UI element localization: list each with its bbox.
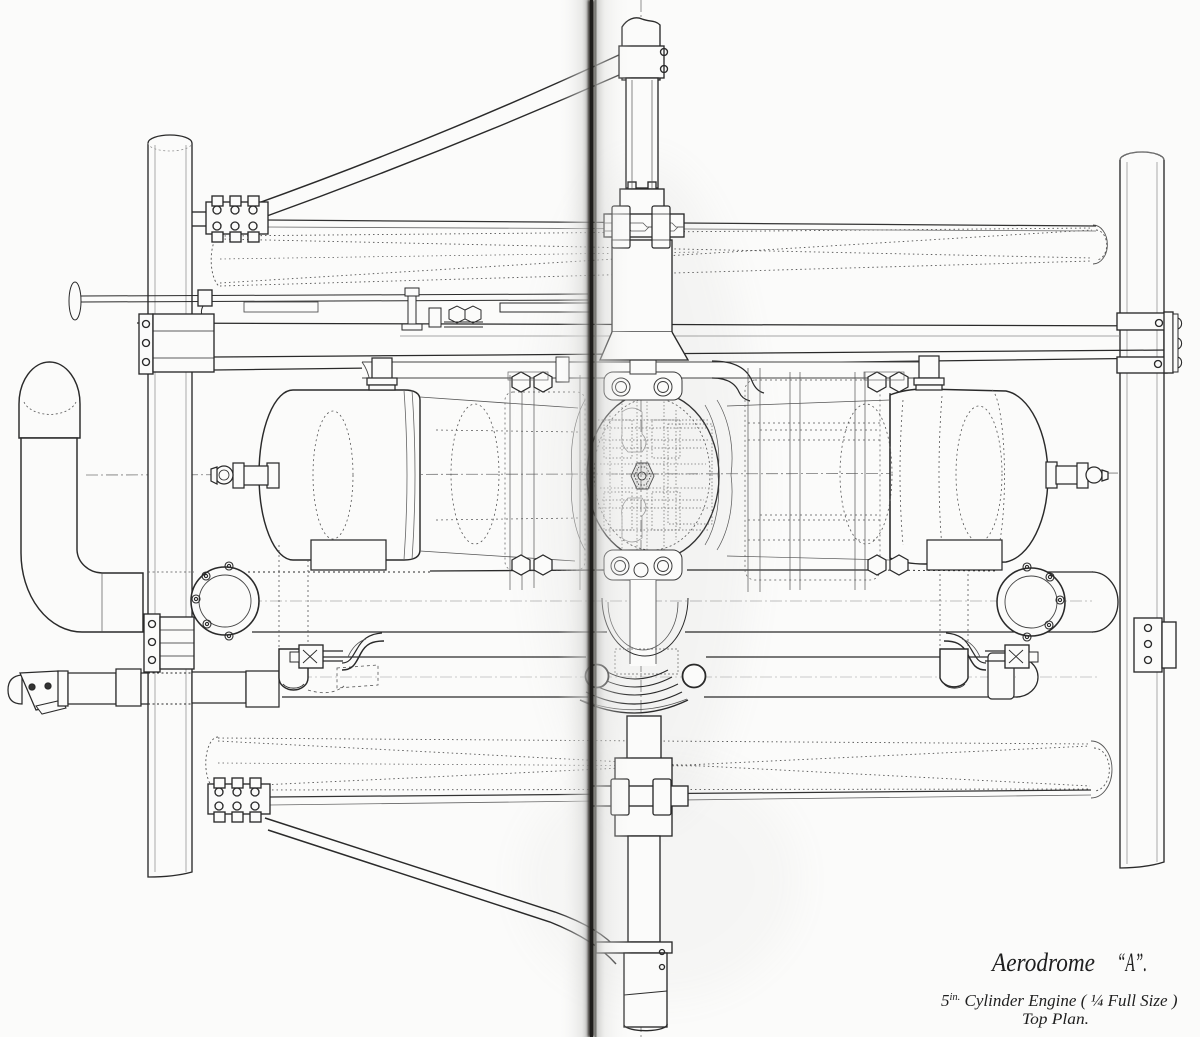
svg-text:Aerodrome: Aerodrome [990, 948, 1095, 977]
svg-text:“A”.: “A”. [1117, 948, 1147, 977]
svg-text:Top Plan.: Top Plan. [1022, 1011, 1089, 1028]
svg-text:5in. Cylinder Engine ( ¼ Full: 5in. Cylinder Engine ( ¼ Full Size ) [941, 991, 1178, 1010]
